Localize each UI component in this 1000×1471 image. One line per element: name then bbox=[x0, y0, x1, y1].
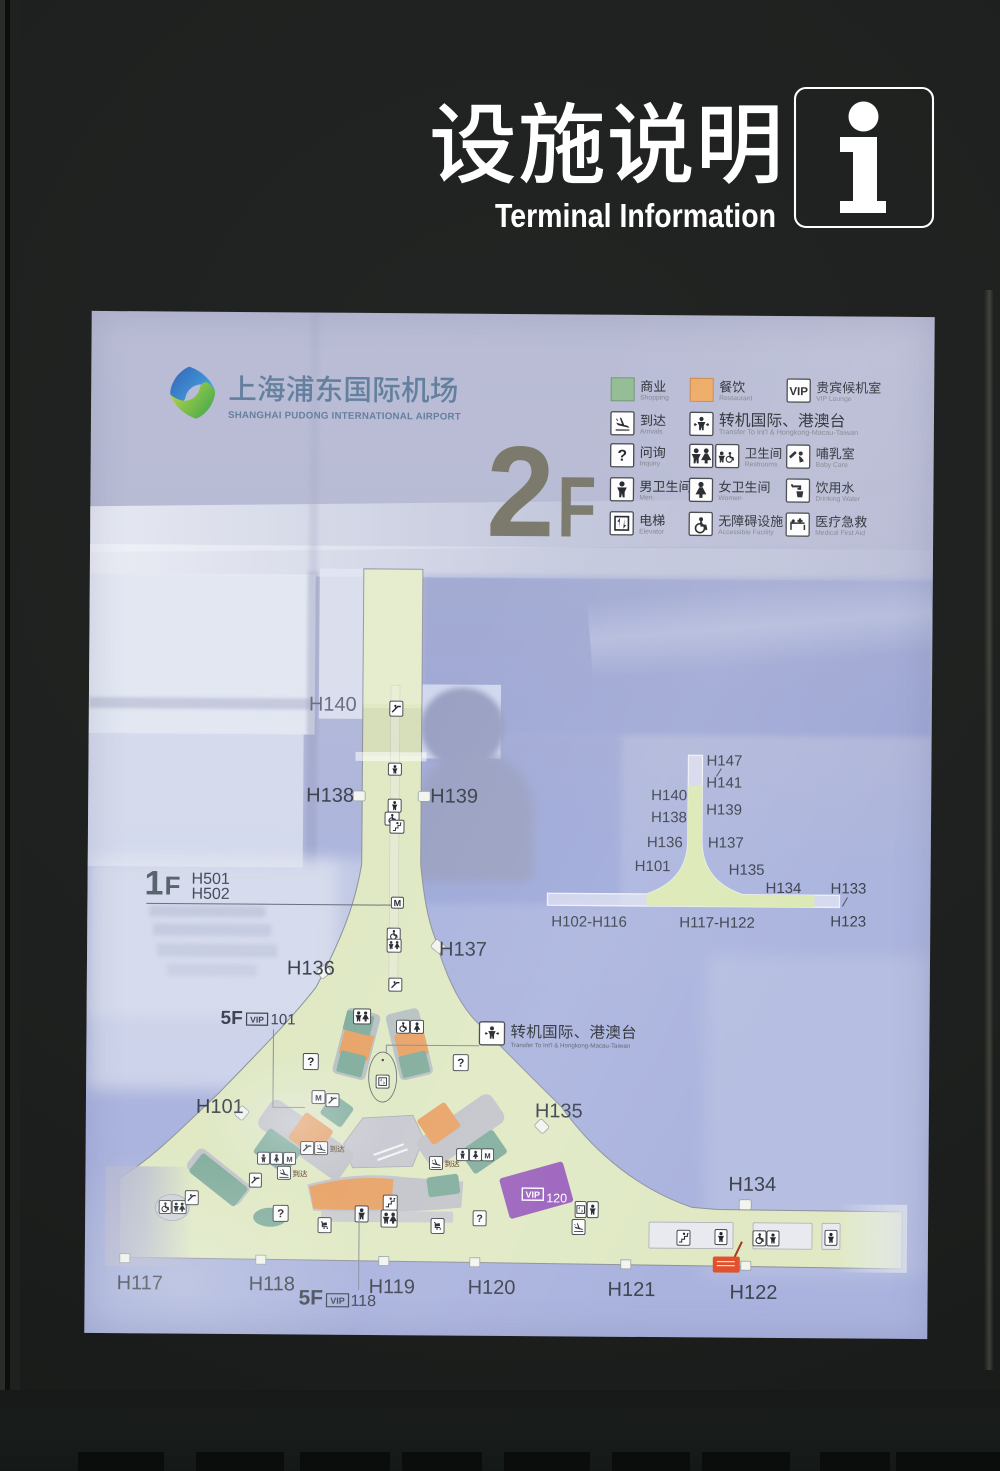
svg-text:H137: H137 bbox=[708, 834, 744, 851]
svg-text:VIP Lounge: VIP Lounge bbox=[816, 396, 852, 403]
svg-text:VIP: VIP bbox=[525, 1190, 540, 1200]
svg-text:1: 1 bbox=[144, 864, 163, 902]
svg-text:118: 118 bbox=[350, 1293, 376, 1310]
svg-text:H118: H118 bbox=[249, 1273, 295, 1295]
svg-text:M: M bbox=[315, 1094, 322, 1103]
svg-text:H101: H101 bbox=[635, 858, 671, 875]
svg-text:Transfer To Int'l & Hongkong-M: Transfer To Int'l & Hongkong-Macau-Taiwa… bbox=[719, 427, 858, 437]
svg-text:SHANGHAI PUDONG INTERNATIONAL: SHANGHAI PUDONG INTERNATIONAL AIRPORT bbox=[228, 410, 461, 423]
svg-text:Medical First Aid: Medical First Aid bbox=[815, 530, 865, 537]
svg-text:H134: H134 bbox=[765, 880, 801, 897]
svg-text:?: ? bbox=[457, 1058, 464, 1070]
svg-text:H135: H135 bbox=[535, 1100, 583, 1122]
svg-text:H101: H101 bbox=[196, 1096, 244, 1118]
svg-text:101: 101 bbox=[271, 1011, 296, 1028]
svg-text:H136: H136 bbox=[287, 957, 335, 979]
svg-text:Baby Care: Baby Care bbox=[816, 462, 848, 469]
svg-text:?: ? bbox=[307, 1056, 314, 1068]
svg-text:M: M bbox=[394, 898, 402, 908]
svg-text:H117: H117 bbox=[117, 1272, 163, 1294]
svg-text:H138: H138 bbox=[306, 785, 354, 807]
svg-text:H120: H120 bbox=[468, 1277, 516, 1299]
svg-text:H122: H122 bbox=[729, 1282, 777, 1304]
svg-text:H123: H123 bbox=[830, 913, 866, 930]
svg-text:Accessible Facility: Accessible Facility bbox=[718, 529, 774, 536]
svg-text:F: F bbox=[164, 870, 180, 900]
svg-text:H134: H134 bbox=[728, 1174, 776, 1196]
svg-text:H140: H140 bbox=[309, 694, 357, 716]
svg-text:?: ? bbox=[476, 1213, 483, 1225]
svg-text:H147: H147 bbox=[706, 752, 742, 769]
svg-text:2: 2 bbox=[486, 419, 555, 564]
svg-text:Transfer To Int'l & Hongkong-M: Transfer To Int'l & Hongkong-Macau-Taiwa… bbox=[510, 1042, 630, 1050]
svg-text:H140: H140 bbox=[651, 787, 687, 804]
svg-text:H139: H139 bbox=[706, 801, 742, 818]
svg-text:H137: H137 bbox=[439, 938, 487, 960]
svg-text:Restaurant: Restaurant bbox=[719, 395, 752, 402]
svg-text:?: ? bbox=[617, 448, 627, 465]
svg-text:5F: 5F bbox=[298, 1286, 323, 1309]
svg-text:VIP: VIP bbox=[789, 386, 808, 398]
svg-text:H502: H502 bbox=[191, 886, 229, 903]
svg-text:H141: H141 bbox=[706, 774, 742, 791]
svg-text:Inquiry: Inquiry bbox=[640, 460, 661, 467]
svg-text:VIP: VIP bbox=[250, 1015, 264, 1025]
svg-text:M: M bbox=[484, 1151, 490, 1160]
svg-text:Terminal Information: Terminal Information bbox=[495, 197, 776, 234]
svg-text:Elevator: Elevator bbox=[639, 528, 665, 535]
svg-text:H135: H135 bbox=[729, 862, 765, 879]
svg-text:5F: 5F bbox=[220, 1008, 242, 1029]
svg-text:Restrooms: Restrooms bbox=[745, 461, 779, 468]
svg-text:Men: Men bbox=[639, 494, 652, 501]
svg-text:Drinking Water: Drinking Water bbox=[815, 496, 860, 503]
svg-text:?: ? bbox=[277, 1208, 284, 1220]
svg-text:M: M bbox=[286, 1155, 292, 1164]
svg-text:H133: H133 bbox=[830, 880, 866, 897]
svg-text:H121: H121 bbox=[608, 1279, 656, 1301]
svg-text:H136: H136 bbox=[647, 834, 683, 851]
svg-text:Women: Women bbox=[718, 495, 742, 502]
svg-text:120: 120 bbox=[546, 1191, 567, 1205]
svg-text:Shopping: Shopping bbox=[640, 394, 669, 401]
svg-text:F: F bbox=[557, 460, 597, 556]
svg-text:H102-H116: H102-H116 bbox=[551, 913, 627, 931]
svg-text:H139: H139 bbox=[430, 785, 478, 807]
svg-text:H117-H122: H117-H122 bbox=[679, 914, 755, 932]
svg-text:H138: H138 bbox=[651, 809, 687, 826]
svg-text:VIP: VIP bbox=[330, 1296, 345, 1306]
svg-text:Arrivals: Arrivals bbox=[640, 428, 663, 435]
